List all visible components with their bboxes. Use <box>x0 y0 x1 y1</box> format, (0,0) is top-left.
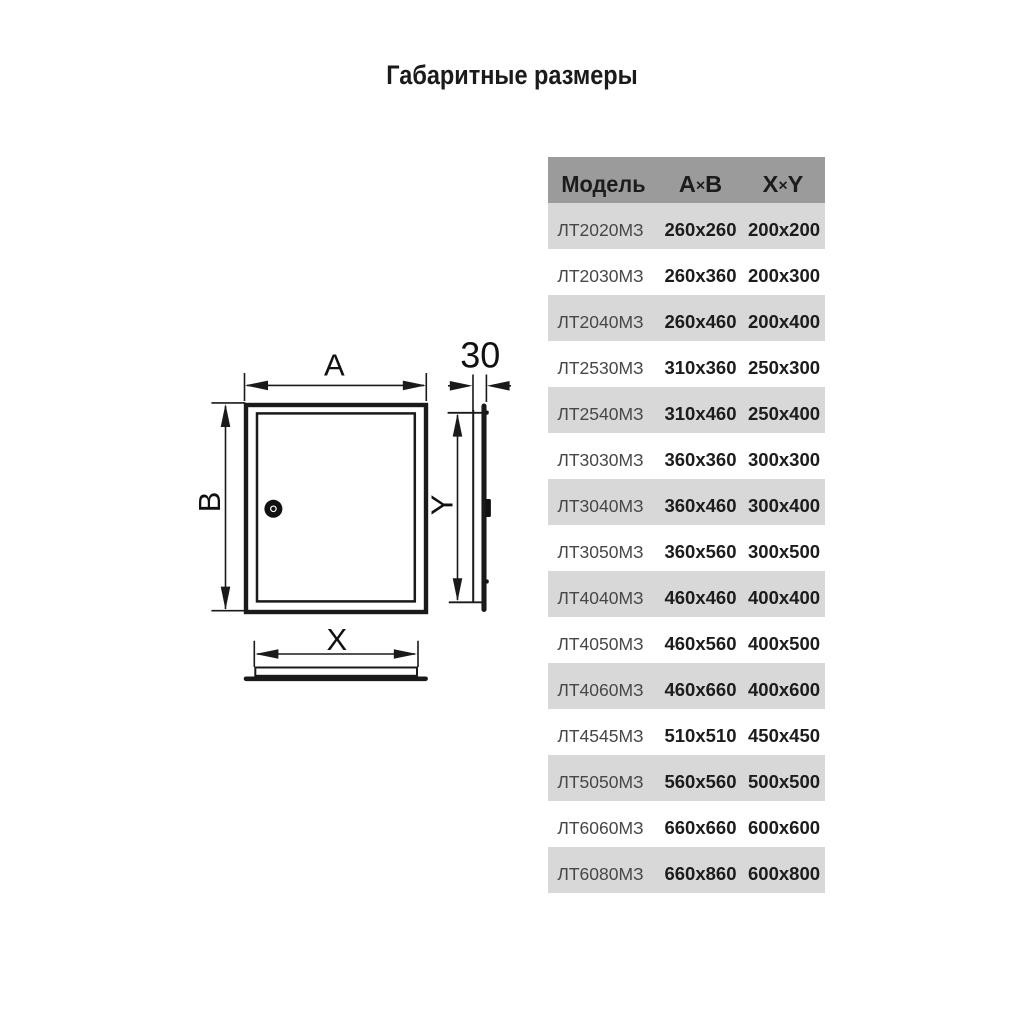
svg-text:X: X <box>327 622 348 657</box>
svg-text:B: B <box>192 492 227 513</box>
svg-text:30: 30 <box>460 335 500 376</box>
svg-text:Y: Y <box>425 495 460 516</box>
svg-text:A: A <box>324 347 345 382</box>
